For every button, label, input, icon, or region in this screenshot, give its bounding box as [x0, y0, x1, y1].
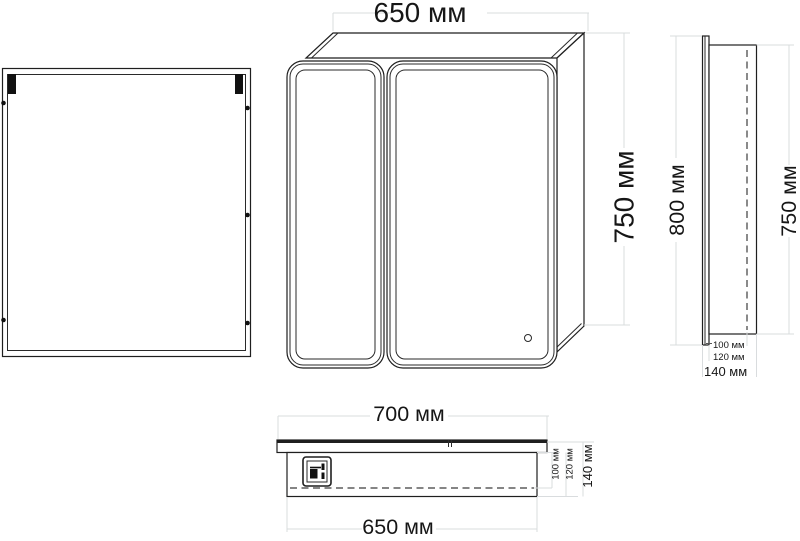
dim-side-mirror-height-label: 800 мм [665, 164, 689, 235]
back-outer-frame [3, 69, 251, 357]
dim-top-depth-120-label: 120 мм [565, 448, 576, 480]
front-view [287, 33, 584, 368]
mounting-bracket-right [235, 74, 243, 94]
cabinet-top-face [306, 33, 584, 58]
mirror-cabinet-drawing: 650 мм 750 мм 800 мм 750 мм 100 мм 120 м… [0, 0, 800, 541]
dim-side-depth-100-label: 100 мм [713, 340, 745, 351]
mirror-door-right [387, 61, 557, 368]
mounting-bracket-left [8, 74, 16, 94]
power-socket-box [303, 457, 331, 486]
dim-side-depth-120-label: 120 мм [713, 352, 745, 363]
dim-front-height-label: 750 мм [609, 151, 640, 244]
dim-top-doors-width-label: 700 мм [373, 402, 444, 426]
technical-drawing-page: 650 мм 750 мм 800 мм 750 мм 100 мм 120 м… [0, 0, 800, 541]
mirror-door-panel-side [703, 36, 710, 345]
dim-side-body-height-label: 750 мм [777, 165, 800, 236]
side-view [703, 36, 757, 345]
dim-top-depth-100-label: 100 мм [551, 448, 562, 480]
dim-top-body-width-label: 650 мм [362, 515, 433, 539]
back-view [1, 69, 250, 357]
mirror-door-left [287, 61, 384, 368]
cabinet-side-face [557, 33, 584, 352]
top-view [277, 440, 547, 497]
dim-top-depth-140-label: 140 мм [580, 444, 595, 487]
cabinet-body-side [709, 45, 757, 334]
dim-side-depth-140-label: 140 мм [704, 364, 747, 379]
dim-front-width-label: 650 мм [374, 0, 467, 28]
